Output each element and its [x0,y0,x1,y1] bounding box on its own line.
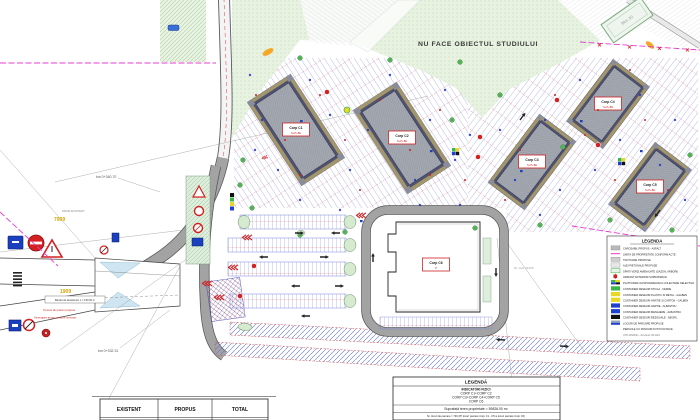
label-corp-c5: Corp C5 S+P+8E [637,180,664,193]
median-island-east [645,40,656,50]
main-access-road [223,0,227,158]
svg-text:PLATFORMA GOSPODAREASCA COLECT: PLATFORMA GOSPODAREASCA COLECTARE SELECT… [623,281,694,285]
indicators-area-line: Suprafață teren proprietate = 59826.00 m… [444,407,508,411]
no-study-label: NU FACE OBIECTUL STUDIULUI [418,41,538,48]
crossing-note: Trecere de pietoni propusa [43,308,76,312]
indicators-title: LEGENDĂ [465,379,488,385]
table-header-existent: EXISTENT [117,407,141,413]
access-note: Amenajare acces conform normativ [34,316,77,320]
svg-text:SPATII VERZI AMENAJATE (GAZON,: SPATII VERZI AMENAJATE (GAZON, ARBORI) [623,269,678,273]
svg-text:CONTAINER DESEURI MENAJERE - A: CONTAINER DESEURI MENAJERE - ALBASTRU [623,310,681,314]
svg-text:CONTAINER DESEURI STICLA - VER: CONTAINER DESEURI STICLA - VERDE [623,287,672,291]
svg-text:HIDRANT EXTERIOR SUPRATERAN: HIDRANT EXTERIOR SUPRATERAN [623,275,667,279]
existing-road-label: DRUM EXISTENT [62,209,85,213]
svg-text:CAROSABIL PROPUS - ASFALT: CAROSABIL PROPUS - ASFALT [623,247,661,251]
svg-text:Corp C6: Corp C6 [429,261,442,265]
svg-text:LIMITA DE PROPRIETATE CONFORM: LIMITA DE PROPRIETATE CONFORM ACTE [623,252,676,256]
svg-text:S+P+8E: S+P+8E [291,131,301,135]
svg-text:CONTAINER DESEURI PLASTIC SI M: CONTAINER DESEURI PLASTIC SI METAL - GAL… [623,293,687,297]
svg-text:Corp C1: Corp C1 [289,126,302,130]
indicators-parking-line: Nr. locuri de parcare = 746 (87 locuri p… [427,414,525,418]
label-corp-c1: Corp C1 S+P+8E [283,123,310,136]
parcel-ref-bottom: 1909 [60,289,71,295]
legend-item-14: PERGOLE CU PANOURI FOTOVOLTAICE [623,327,673,331]
svg-text:S+P+8E: S+P+8E [527,163,537,167]
svg-text:LOCURI DE PARCARE PROPUSE: LOCURI DE PARCARE PROPUSE [623,321,664,325]
boundary-markers [598,44,689,52]
svg-text:Corp C4: Corp C4 [601,100,614,104]
cadastral-note: Nr. cad. 31245 [514,266,534,270]
legend-footnote: UTR 035/2021 - Revizuire 05.2021 [623,334,661,337]
indicators-corp-line3: CORP C6 [469,400,484,404]
km-marker-top: km 0+340.70 [96,175,116,179]
svg-text:Corp C5: Corp C5 [643,183,656,187]
summary-table: EXISTENT PROPUS TOTAL [92,397,276,420]
table-header-propus: PROPUS [174,407,196,413]
label-corp-c4: Corp C4 S+P+8E [595,97,622,110]
svg-text:CONTAINER DESEURI HARTIE SI CA: CONTAINER DESEURI HARTIE SI CARTON - GAL… [623,299,688,303]
svg-text:S+P+8E: S+P+8E [397,139,407,143]
site-plan-svg: Bloc 30 [0,0,700,420]
street-sign-badge [168,25,179,31]
svg-text:Corp C2: Corp C2 [395,134,408,138]
svg-text:Corp C3: Corp C3 [525,158,538,162]
km-marker-bottom: km 0+332.31 [98,349,118,353]
restriction-sign-icon [195,207,204,216]
roadside-green-strip [186,176,210,264]
label-corp-c2: Corp C2 S+P+8E [389,131,416,144]
svg-text:S+P+8E: S+P+8E [645,188,655,192]
site-plan-sheet: Bloc 30 [0,0,700,420]
svg-text:CONTAINER DESEURI HARTIE - ALB: CONTAINER DESEURI HARTIE - ALBASTRU [623,304,676,308]
svg-text:S+P+8E: S+P+8E [603,105,613,109]
legend-title: LEGENDA [642,239,662,244]
parking-sign-icon [192,238,203,246]
parcel-ref-top: 7909 [54,217,65,223]
legend-panel: LEGENDA CAROSABIL PROPUS - ASFALT LIMITA… [607,236,697,341]
label-corp-c6: Corp C6 P [423,258,450,271]
playground-marker [344,107,350,113]
svg-text:Banda de decelerare L = 150.00: Banda de decelerare L = 150.00 m [55,298,95,302]
svg-text:PERGOLE CU PANOURI FOTOVOLTAIC: PERGOLE CU PANOURI FOTOVOLTAICE [623,327,673,331]
svg-text:CONTAINER DESEURI REZIDUALE -: CONTAINER DESEURI REZIDUALE - NEGRU [623,316,677,320]
sign-cluster-northwest [8,235,62,257]
svg-text:ALEI PIETONALE PROPUSE: ALEI PIETONALE PROPUSE [623,264,658,268]
label-corp-c3: Corp C3 S+P+8E [519,155,546,168]
svg-text:P: P [435,266,437,270]
info-sign-icon [112,233,119,242]
svg-text:TROTUARE PROPUSE: TROTUARE PROPUSE [623,258,651,262]
table-header-total: TOTAL [232,407,248,413]
decel-lane-note: Banda de decelerare L = 150.00 m [45,296,105,303]
indicators-panel: LEGENDĂ INDICATORI FIZICI CORP C1+CORP C… [393,377,560,420]
